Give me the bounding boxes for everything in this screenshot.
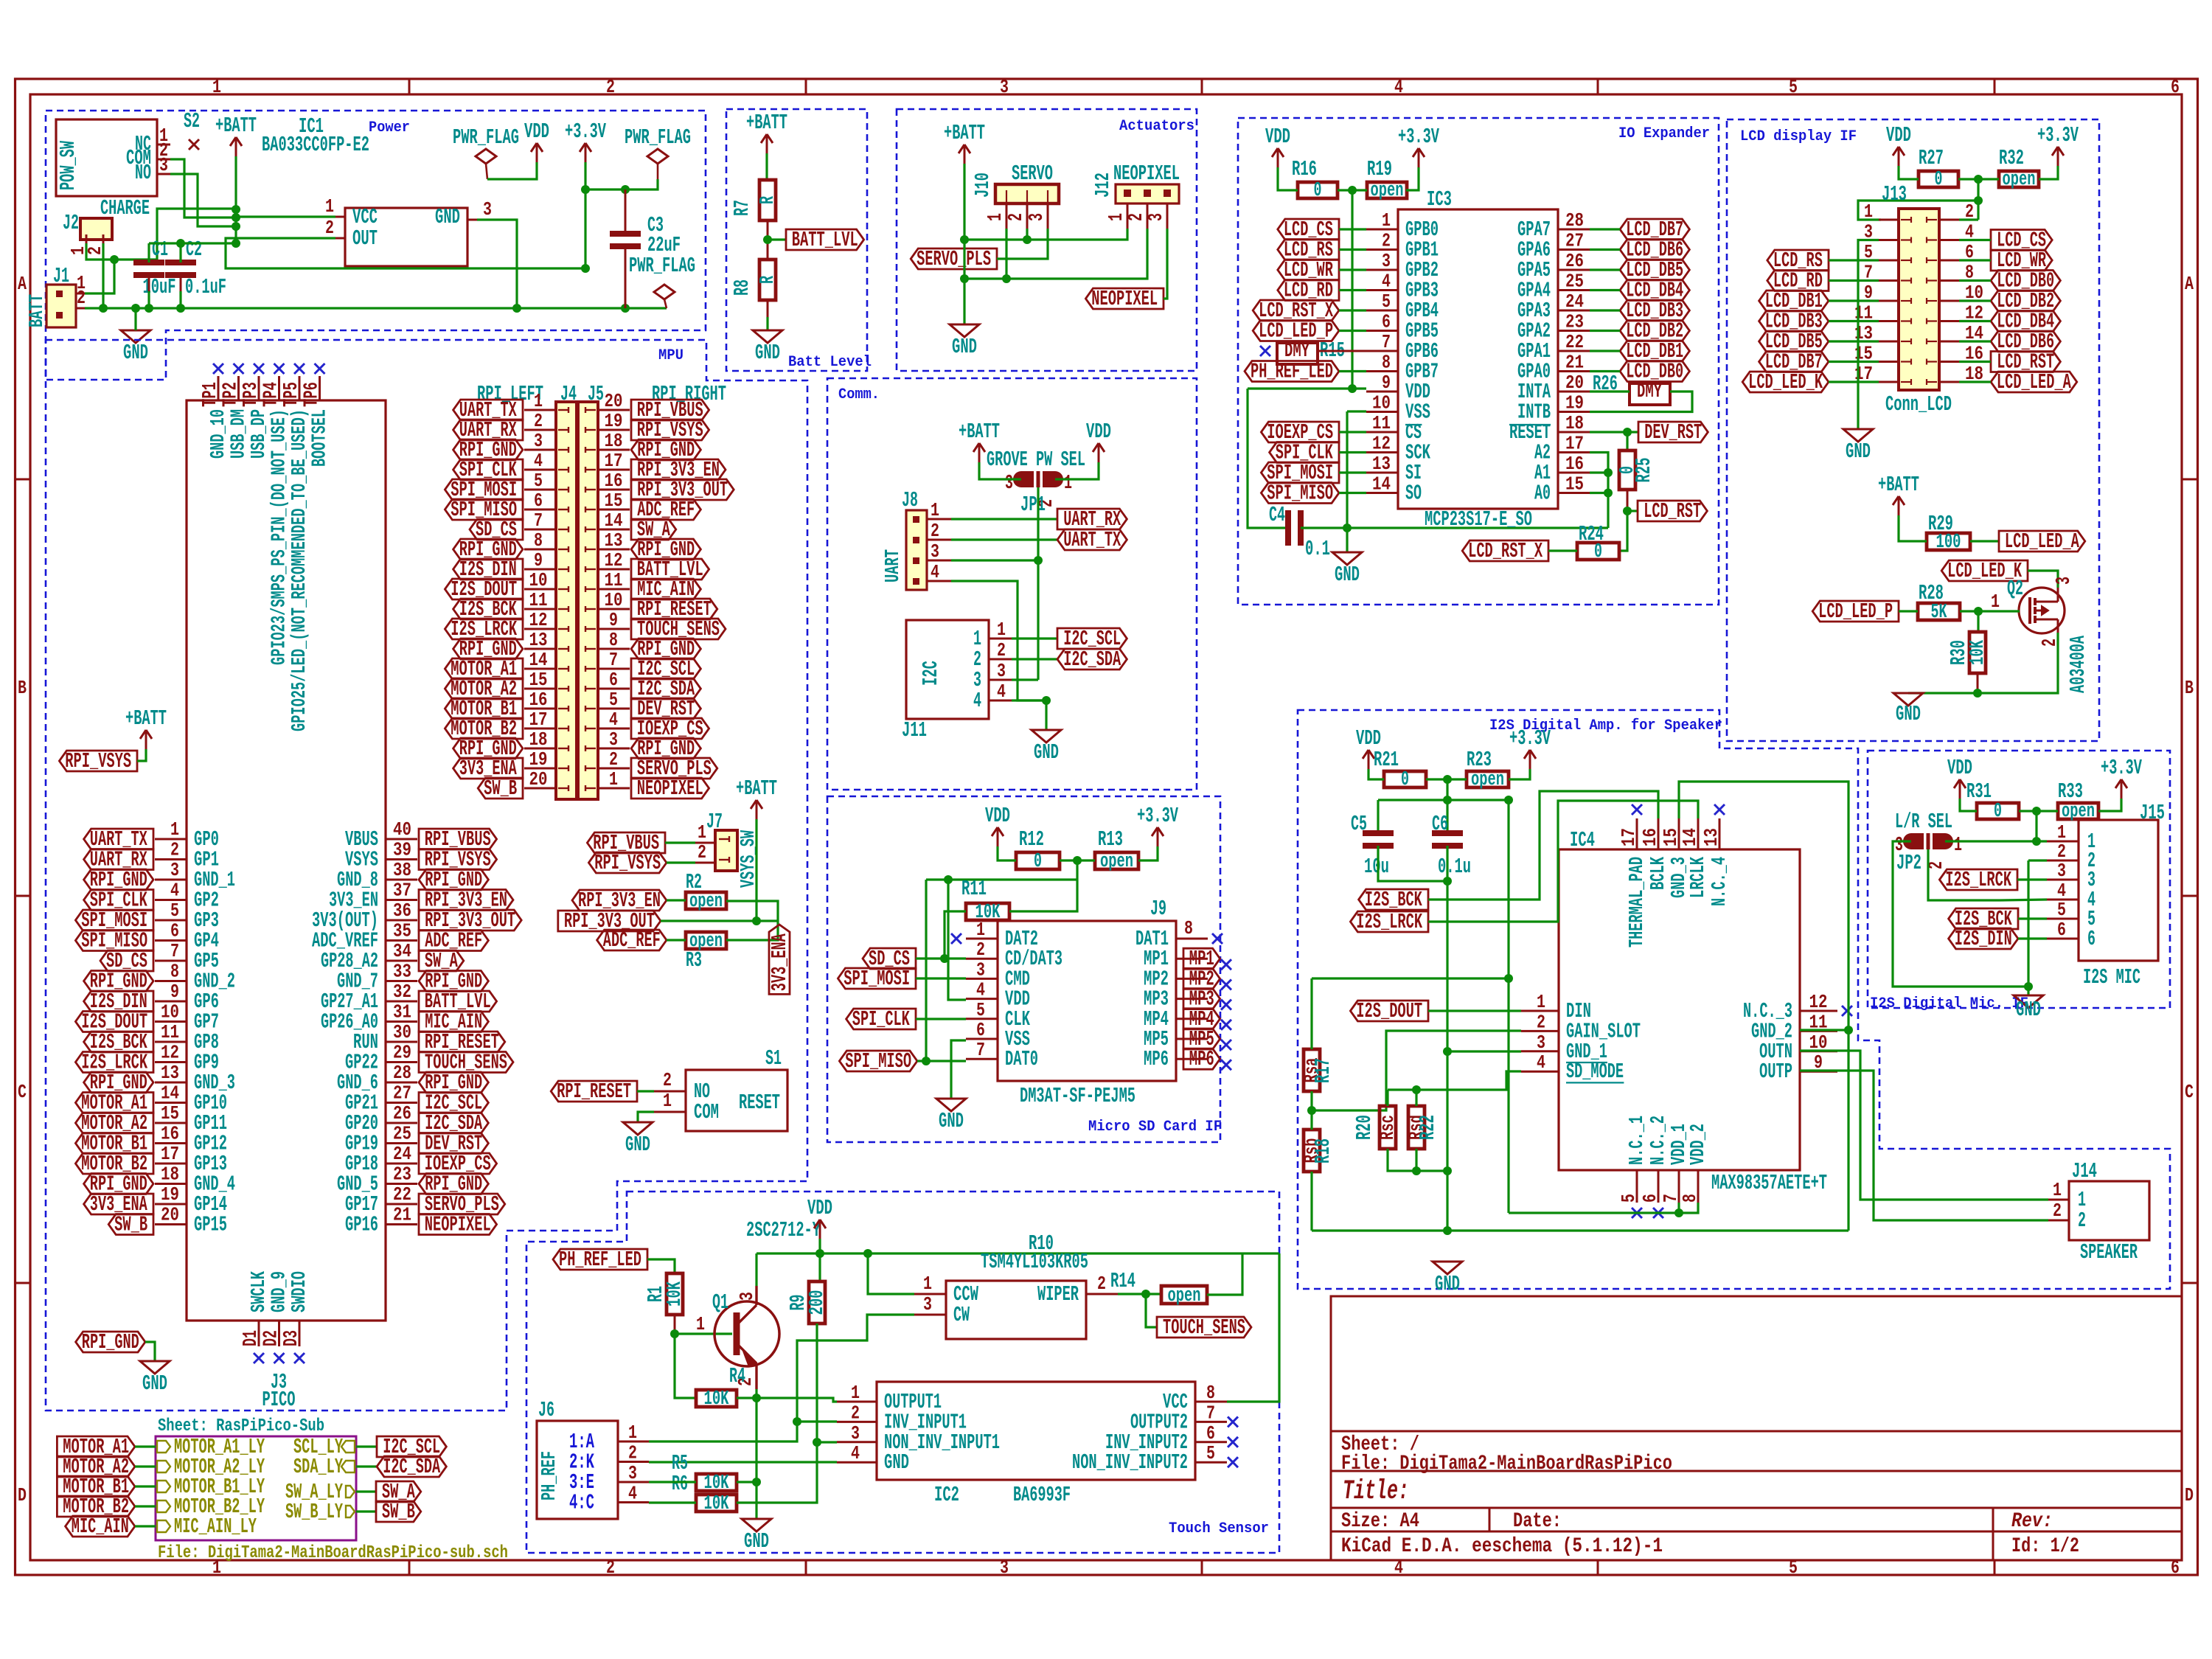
svg-text:Id: 1/2: Id: 1/2 [2011, 1535, 2079, 1558]
svg-text:3: 3 [170, 859, 179, 881]
svg-text:NEOPIXEL: NEOPIXEL [425, 1213, 491, 1237]
svg-text:WIPER: WIPER [1037, 1282, 1079, 1307]
svg-text:+3.3V: +3.3V [1398, 125, 1439, 149]
svg-text:DM3AT-SF-PEJM5: DM3AT-SF-PEJM5 [1020, 1084, 1135, 1108]
svg-text:GP16: GP16 [345, 1213, 378, 1237]
svg-text:TSM4YL103KR05: TSM4YL103KR05 [981, 1250, 1088, 1274]
svg-text:8: 8 [609, 629, 618, 651]
svg-text:GND: GND [1335, 563, 1360, 587]
svg-text:2: 2 [1126, 213, 1148, 221]
svg-text:15: 15 [529, 669, 548, 691]
svg-text:J6: J6 [538, 1398, 554, 1422]
svg-text:2: 2 [1006, 213, 1028, 221]
svg-text:0.1u: 0.1u [1438, 855, 1471, 879]
svg-text:VDD: VDD [1886, 123, 1911, 147]
svg-text:D: D [2185, 1484, 2194, 1506]
svg-text:GND_10: GND_10 [208, 409, 230, 459]
svg-text:1: 1 [931, 499, 939, 521]
svg-text:SPI_CLK: SPI_CLK [852, 1007, 910, 1032]
svg-text:4: 4 [1537, 1051, 1545, 1074]
svg-text:IO Expander: IO Expander [1618, 125, 1710, 142]
svg-text:3: 3 [483, 198, 492, 220]
svg-text:15: 15 [161, 1102, 179, 1124]
svg-text:IC2: IC2 [934, 1483, 959, 1507]
svg-text:D3: D3 [281, 1330, 303, 1346]
svg-text:6: 6 [170, 920, 179, 942]
svg-text:KiCad E.D.A. eeschema (5.1.12: KiCad E.D.A. eeschema (5.1.12)-1 [1341, 1535, 1663, 1558]
svg-text:LCD display IF: LCD display IF [1740, 128, 1857, 145]
svg-text:+BATT: +BATT [746, 111, 787, 135]
svg-text:R22: R22 [1416, 1115, 1440, 1140]
svg-text:5: 5 [2057, 899, 2066, 921]
svg-text:28: 28 [1565, 209, 1584, 232]
svg-text:VDD: VDD [807, 1196, 832, 1220]
svg-text:2: 2 [997, 639, 1006, 661]
svg-text:4: 4 [851, 1442, 860, 1464]
svg-text:27: 27 [1565, 230, 1584, 252]
svg-text:Q1: Q1 [712, 1290, 728, 1315]
svg-text:R4: R4 [729, 1364, 745, 1388]
svg-text:14: 14 [161, 1082, 179, 1105]
svg-text:1: 1 [985, 213, 1007, 221]
svg-text:R1: R1 [644, 1286, 668, 1302]
svg-text:+BATT: +BATT [959, 420, 1000, 444]
svg-text:J13: J13 [1882, 182, 1907, 206]
svg-text:13: 13 [1700, 828, 1722, 846]
svg-text:NEOPIXEL: NEOPIXEL [1113, 161, 1180, 186]
svg-text:File: DigiTama2-MainBoardRasPi: File: DigiTama2-MainBoardRasPiPico [1341, 1453, 1672, 1475]
svg-text:10K: 10K [704, 1493, 730, 1515]
svg-text:GND: GND [755, 341, 780, 365]
svg-text:5: 5 [976, 999, 985, 1021]
svg-text:GND: GND [744, 1529, 769, 1554]
svg-text:OUT: OUT [352, 226, 378, 251]
svg-text:VDD: VDD [1265, 125, 1290, 149]
svg-text:18: 18 [161, 1164, 179, 1186]
svg-text:GND: GND [1896, 702, 1921, 726]
svg-text:8: 8 [534, 529, 543, 552]
svg-text:C1: C1 [152, 237, 168, 262]
svg-text:24: 24 [393, 1143, 411, 1165]
svg-text:N.C._4: N.C._4 [1709, 857, 1731, 906]
svg-text:MIC_AIN: MIC_AIN [72, 1514, 129, 1539]
svg-text:SERVO: SERVO [1012, 161, 1053, 186]
svg-text:5: 5 [1618, 1194, 1640, 1203]
svg-text:BA033CC0FP-E2: BA033CC0FP-E2 [262, 133, 369, 157]
svg-text:3V3_ENA: 3V3_ENA [768, 933, 792, 991]
svg-text:5: 5 [609, 689, 618, 711]
svg-text:8: 8 [1206, 1382, 1215, 1404]
svg-text:LCD_RST_X: LCD_RST_X [1468, 539, 1543, 563]
svg-text:12: 12 [1809, 991, 1828, 1013]
svg-text:R25: R25 [1632, 458, 1656, 483]
svg-text:R30: R30 [1947, 640, 1971, 665]
svg-text:29: 29 [393, 1042, 411, 1064]
svg-text:I2C_SDA: I2C_SDA [383, 1455, 440, 1479]
svg-text:1: 1 [609, 768, 618, 790]
svg-text:1: 1 [325, 195, 334, 218]
svg-text:C: C [18, 1081, 27, 1103]
svg-text:100: 100 [1936, 532, 1961, 554]
svg-text:RESET: RESET [739, 1091, 780, 1115]
svg-text:D: D [18, 1484, 27, 1506]
svg-text:VDD: VDD [524, 119, 549, 144]
svg-text:MAX98357AETE+T: MAX98357AETE+T [1711, 1171, 1827, 1195]
svg-text:1: 1 [976, 919, 985, 941]
svg-text:BCLK: BCLK [1648, 856, 1670, 890]
svg-text:2: 2 [1382, 230, 1391, 252]
svg-text:3: 3 [1537, 1032, 1545, 1054]
svg-text:GND: GND [1846, 439, 1871, 464]
svg-text:38: 38 [393, 859, 411, 881]
svg-text:R14: R14 [1110, 1269, 1135, 1293]
svg-text:9: 9 [609, 609, 618, 631]
svg-text:2: 2 [851, 1402, 860, 1424]
svg-text:2: 2 [931, 520, 939, 542]
svg-text:B: B [18, 677, 27, 699]
svg-text:23: 23 [1565, 311, 1584, 333]
svg-text:TP5: TP5 [281, 382, 303, 407]
svg-text:1: 1 [534, 390, 543, 412]
svg-text:LRCLK: LRCLK [1688, 856, 1710, 898]
svg-text:13: 13 [161, 1062, 179, 1084]
svg-text:GP15: GP15 [194, 1213, 227, 1237]
svg-text:I2S Digital Mic. IF: I2S Digital Mic. IF [1870, 995, 2028, 1012]
svg-text:RPI_VSYS: RPI_VSYS [65, 749, 131, 773]
svg-text:A0: A0 [1534, 481, 1551, 506]
svg-text:S2: S2 [184, 109, 200, 133]
svg-text:0.1uF: 0.1uF [185, 275, 226, 299]
svg-text:R16: R16 [1292, 157, 1317, 181]
svg-text:J12: J12 [1093, 173, 1115, 198]
svg-text:MCP23S17-E_SO: MCP23S17-E_SO [1425, 507, 1532, 532]
svg-text:BOOTSEL: BOOTSEL [310, 409, 332, 467]
svg-text:6: 6 [1382, 311, 1391, 333]
svg-text:26: 26 [1565, 250, 1584, 272]
svg-text:10: 10 [529, 569, 548, 591]
svg-text:SERVO_PLS: SERVO_PLS [917, 247, 991, 271]
svg-text:8: 8 [1382, 352, 1391, 374]
svg-text:20: 20 [605, 390, 623, 412]
svg-text:4: 4 [1382, 271, 1391, 293]
svg-text:2: 2 [1965, 201, 1974, 223]
svg-text:TOUCH_SENS: TOUCH_SENS [1163, 1315, 1245, 1340]
svg-text:R11: R11 [961, 877, 987, 901]
svg-text:9: 9 [170, 981, 179, 1003]
svg-text:0.1: 0.1 [1305, 537, 1330, 561]
svg-text:Title:: Title: [1343, 1476, 1409, 1507]
svg-text:18: 18 [529, 728, 548, 751]
svg-text:16: 16 [1565, 453, 1584, 475]
svg-text:LCD_DB0: LCD_DB0 [1626, 360, 1683, 384]
svg-text:J5: J5 [588, 382, 604, 406]
svg-text:35: 35 [393, 920, 411, 942]
svg-text:12: 12 [605, 549, 623, 571]
svg-text:+BATT: +BATT [125, 706, 167, 731]
svg-text:SWDIO: SWDIO [289, 1271, 311, 1312]
svg-text:10uF: 10uF [143, 275, 176, 299]
svg-text:1: 1 [1064, 473, 1072, 495]
svg-text:2: 2 [1097, 1273, 1106, 1295]
svg-text:3: 3 [2057, 860, 2066, 882]
svg-text:14: 14 [605, 509, 623, 532]
svg-text:R12: R12 [1019, 827, 1044, 852]
svg-text:+3.3V: +3.3V [1137, 804, 1178, 828]
svg-text:3: 3 [923, 1293, 932, 1315]
svg-text:15: 15 [605, 490, 623, 512]
svg-text:3: 3 [1000, 76, 1009, 98]
svg-text:L/R SEL: L/R SEL [1895, 810, 1952, 834]
svg-text:SO: SO [1405, 481, 1422, 506]
svg-text:GND: GND [1435, 1272, 1460, 1296]
svg-text:+3.3V: +3.3V [565, 119, 606, 144]
svg-text:LCD_LED_K: LCD_LED_K [1748, 370, 1823, 394]
svg-text:10K: 10K [704, 1388, 730, 1411]
svg-text:open: open [689, 891, 723, 913]
svg-text:DMY: DMY [1637, 381, 1663, 403]
svg-text:R: R [757, 275, 779, 284]
svg-text:20: 20 [1565, 372, 1584, 394]
svg-text:open: open [1371, 180, 1404, 202]
svg-text:3: 3 [976, 959, 985, 981]
svg-text:GND: GND [435, 205, 460, 229]
svg-text:GND: GND [952, 335, 977, 359]
svg-text:MP6: MP6 [1189, 1047, 1214, 1071]
svg-text:B: B [2185, 677, 2194, 699]
svg-text:GROVE PW SEL: GROVE PW SEL [987, 448, 1085, 472]
svg-text:16: 16 [161, 1123, 179, 1145]
svg-text:CW: CW [953, 1303, 970, 1327]
svg-text:13: 13 [529, 629, 548, 651]
svg-text:SPI_MISO: SPI_MISO [1267, 481, 1333, 506]
svg-text:R27: R27 [1919, 146, 1944, 170]
svg-text:R32: R32 [1999, 146, 2024, 170]
svg-text:SW_B: SW_B [114, 1213, 147, 1237]
svg-text:21: 21 [1565, 352, 1584, 374]
svg-text:2: 2 [976, 939, 985, 961]
svg-text:4: 4 [997, 681, 1006, 703]
svg-text:0: 0 [1994, 801, 2002, 823]
svg-text:3: 3 [628, 1462, 637, 1484]
svg-text:7: 7 [976, 1039, 985, 1061]
svg-text:R21: R21 [1374, 748, 1399, 772]
svg-text:PWR_FLAG: PWR_FLAG [453, 125, 519, 150]
svg-text:1: 1 [698, 821, 706, 844]
svg-text:2: 2 [628, 1442, 637, 1464]
svg-text:JP1: JP1 [1020, 493, 1046, 517]
svg-text:+BATT: +BATT [1878, 473, 1919, 497]
svg-text:24: 24 [1565, 291, 1584, 313]
svg-text:Rev:: Rev: [2011, 1510, 2053, 1533]
svg-text:Micro SD Card IF: Micro SD Card IF [1088, 1119, 1222, 1135]
svg-text:6: 6 [2171, 76, 2180, 98]
svg-text:3: 3 [1000, 1557, 1009, 1579]
svg-text:GND: GND [884, 1450, 909, 1475]
svg-text:GPIO23/SMPS_PS_PIN_(DO_NOT_USE: GPIO23/SMPS_PS_PIN_(DO_NOT_USE) [269, 409, 291, 665]
svg-text:20: 20 [529, 768, 548, 790]
svg-text:+3.3V: +3.3V [2101, 756, 2142, 780]
svg-text:SW_B_LY: SW_B_LY [285, 1500, 343, 1524]
svg-text:NON_INV_INPUT2: NON_INV_INPUT2 [1072, 1450, 1188, 1475]
svg-text:File: DigiTama2-MainBoardRasPi: File: DigiTama2-MainBoardRasPiPico-sub.s… [158, 1543, 508, 1563]
svg-text:open: open [1168, 1285, 1201, 1307]
svg-text:BATT_LVL: BATT_LVL [792, 228, 858, 252]
svg-text:Date:: Date: [1513, 1510, 1562, 1533]
svg-text:MPU: MPU [658, 347, 684, 364]
svg-text:Comm.: Comm. [838, 386, 880, 403]
svg-text:16: 16 [529, 689, 548, 711]
svg-text:2: 2 [698, 841, 706, 863]
svg-text:I2S_LRCK: I2S_LRCK [1945, 868, 2011, 892]
svg-text:5: 5 [1206, 1442, 1215, 1464]
svg-text:GND: GND [625, 1133, 650, 1157]
svg-text:2: 2 [609, 748, 618, 771]
svg-text:5: 5 [1789, 76, 1798, 98]
svg-text:32: 32 [393, 981, 411, 1003]
svg-text:1: 1 [851, 1382, 860, 1404]
svg-text:A03400A: A03400A [2066, 636, 2090, 693]
svg-text:GND_9: GND_9 [269, 1271, 291, 1312]
svg-text:+BATT: +BATT [215, 114, 257, 138]
svg-text:NO: NO [135, 161, 151, 185]
svg-text:USB_DM: USB_DM [229, 409, 251, 459]
svg-text:0: 0 [1935, 169, 1943, 191]
svg-text:R18: R18 [1311, 1138, 1335, 1164]
svg-text:+BATT: +BATT [944, 121, 985, 145]
svg-text:27: 27 [393, 1082, 411, 1105]
svg-text:16: 16 [605, 470, 623, 492]
svg-text:POW_SW: POW_SW [56, 141, 80, 190]
svg-text:TP1: TP1 [200, 382, 222, 407]
svg-text:COM: COM [694, 1100, 719, 1124]
svg-text:7: 7 [170, 940, 179, 962]
svg-text:C: C [2185, 1081, 2194, 1103]
svg-text:R33: R33 [2058, 779, 2083, 804]
svg-text:SPEAKER: SPEAKER [2080, 1240, 2138, 1265]
svg-text:3: 3 [851, 1422, 860, 1444]
svg-text:DAT0: DAT0 [1005, 1047, 1038, 1071]
svg-text:3: 3 [1005, 473, 1013, 495]
svg-text:12: 12 [529, 609, 548, 631]
svg-text:28: 28 [393, 1062, 411, 1084]
svg-text:3: 3 [2053, 577, 2076, 585]
svg-text:19: 19 [605, 410, 623, 432]
svg-text:2: 2 [77, 287, 86, 309]
svg-text:0: 0 [1034, 851, 1042, 873]
svg-text:10: 10 [1372, 392, 1391, 414]
svg-text:30: 30 [393, 1021, 411, 1043]
svg-text:3: 3 [159, 154, 168, 176]
svg-text:RPI_RESET: RPI_RESET [557, 1079, 631, 1104]
svg-text:18: 18 [605, 430, 623, 452]
svg-text:1: 1 [212, 76, 221, 98]
svg-text:J9: J9 [1150, 897, 1166, 921]
svg-text:3: 3 [1146, 213, 1168, 221]
svg-text:20: 20 [161, 1204, 179, 1226]
svg-text:GND: GND [123, 341, 148, 365]
svg-text:PICO: PICO [262, 1388, 296, 1412]
svg-text:8: 8 [1184, 917, 1193, 939]
svg-text:4: 4 [628, 1483, 637, 1505]
svg-text:4: 4 [1394, 76, 1403, 98]
svg-text:1: 1 [1537, 991, 1545, 1013]
svg-text:9: 9 [1382, 372, 1391, 394]
svg-text:Conn_LCD: Conn_LCD [1885, 392, 1952, 417]
svg-text:5: 5 [1382, 291, 1391, 313]
svg-text:15: 15 [1565, 473, 1584, 495]
svg-text:A: A [2185, 273, 2194, 295]
svg-text:open: open [689, 931, 723, 953]
svg-text:3: 3 [997, 660, 1006, 682]
svg-text:19: 19 [161, 1183, 179, 1206]
svg-text:1: 1 [628, 1422, 637, 1444]
svg-text:1: 1 [1106, 213, 1128, 221]
svg-text:PWR_FLAG: PWR_FLAG [629, 254, 695, 278]
svg-text:22: 22 [1565, 331, 1584, 353]
svg-text:4: 4 [534, 450, 543, 472]
svg-text:J4: J4 [560, 382, 577, 406]
svg-text:39: 39 [393, 839, 411, 861]
svg-text:GPIO25/LED_(NOT_RECOMMENDED_TO: GPIO25/LED_(NOT_RECOMMENDED_TO_BE_USED) [289, 409, 311, 731]
svg-text:C4: C4 [1269, 503, 1285, 527]
svg-text:12: 12 [161, 1042, 179, 1064]
svg-text:36: 36 [393, 900, 411, 922]
svg-text:7: 7 [534, 509, 543, 532]
svg-text:10u: 10u [1364, 855, 1389, 879]
svg-text:14: 14 [1372, 473, 1391, 495]
svg-text:6: 6 [976, 1019, 985, 1041]
svg-text:1: 1 [997, 619, 1006, 641]
svg-text:1: 1 [2053, 1179, 2062, 1201]
svg-text:3: 3 [736, 1292, 758, 1301]
svg-text:BA6993F: BA6993F [1013, 1483, 1071, 1507]
svg-text:11: 11 [529, 589, 548, 611]
svg-text:I2S_BCK: I2S_BCK [1365, 888, 1422, 912]
svg-text:+BATT: +BATT [736, 776, 777, 801]
svg-text:10: 10 [161, 1001, 179, 1023]
svg-text:OUTP: OUTP [1759, 1060, 1792, 1084]
svg-text:2: 2 [2053, 1200, 2062, 1222]
svg-text:4: 4 [973, 689, 981, 713]
svg-text:1: 1 [1954, 835, 1962, 857]
svg-text:TP3: TP3 [240, 382, 262, 407]
svg-text:I2S_DIN: I2S_DIN [1955, 927, 2012, 951]
svg-text:8: 8 [1679, 1194, 1701, 1203]
svg-text:4: 4 [609, 709, 618, 731]
svg-text:SW_B: SW_B [484, 776, 517, 801]
svg-text:Power: Power [369, 119, 410, 136]
svg-text:TP6: TP6 [302, 382, 324, 407]
svg-text:JP2: JP2 [1896, 851, 1921, 875]
svg-text:7: 7 [1206, 1402, 1215, 1424]
svg-text:I2S MIC: I2S MIC [2083, 965, 2140, 990]
svg-text:Touch Sensor: Touch Sensor [1169, 1520, 1269, 1537]
svg-text:GND: GND [1034, 740, 1059, 765]
svg-text:2: 2 [2078, 1208, 2086, 1233]
svg-text:R: R [757, 195, 779, 204]
svg-text:GND: GND [142, 1371, 167, 1396]
svg-text:6: 6 [1639, 1194, 1661, 1203]
svg-text:I2C: I2C [919, 661, 943, 686]
svg-text:DMY: DMY [1284, 341, 1310, 363]
svg-text:VDD: VDD [1947, 756, 1972, 780]
svg-text:Actuators: Actuators [1119, 118, 1194, 135]
svg-text:11: 11 [1372, 412, 1391, 434]
svg-text:C2: C2 [186, 237, 202, 262]
svg-text:2SC2712-Y: 2SC2712-Y [746, 1218, 821, 1242]
svg-text:SW_B: SW_B [382, 1500, 415, 1524]
svg-text:LCD_LED_P: LCD_LED_P [1818, 599, 1893, 624]
